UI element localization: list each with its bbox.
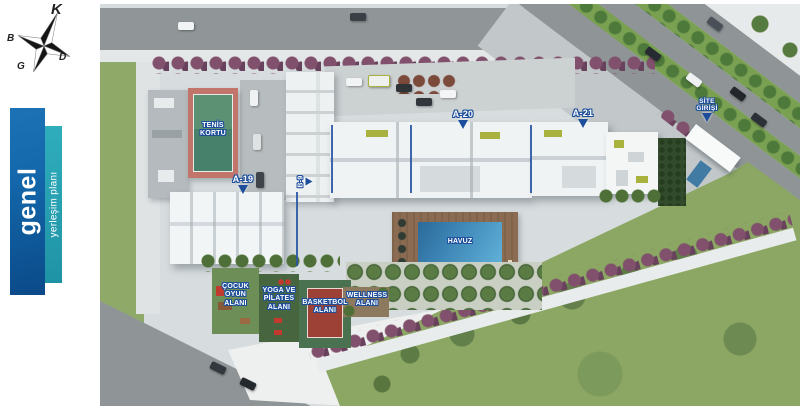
marker-a20-label: A-20 <box>453 109 474 119</box>
compass-star-icon <box>6 2 90 86</box>
car <box>350 13 366 21</box>
playground-label: ÇOCUK OYUN ALANI <box>212 283 259 308</box>
compass-east-label: D <box>59 52 66 63</box>
trees-east <box>598 188 662 204</box>
tennis-label: TENİS KORTU <box>188 122 238 139</box>
playground-label-line3: ALANI <box>212 300 259 308</box>
map-pin-icon <box>702 113 712 122</box>
parcel-line <box>331 125 333 193</box>
wellness-label-line2: ALANI <box>344 300 390 308</box>
compass-south-label: G <box>17 61 25 72</box>
tennis-label-line2: KORTU <box>188 130 238 138</box>
marker-a21-label: A-21 <box>573 108 594 118</box>
yoga-label-line3: ALANI <box>258 304 300 312</box>
marker-site-entrance: SİTE GİRİŞİ <box>685 98 729 122</box>
building-a21 <box>532 122 608 196</box>
parcel-line <box>296 192 298 266</box>
car <box>346 78 362 86</box>
marker-b9: B-9 <box>298 168 313 196</box>
truck <box>368 75 390 87</box>
parcel-line <box>530 125 532 193</box>
car <box>178 22 194 30</box>
marker-a19: A-19 <box>223 174 263 194</box>
pool-label: HAVUZ <box>448 238 473 246</box>
car <box>416 98 432 106</box>
car <box>253 134 261 150</box>
map-pin-icon <box>306 178 313 186</box>
compass-west-label: B <box>7 33 14 44</box>
marker-b9-label: B-9 <box>298 175 305 187</box>
marker-a20: A-20 <box>443 109 483 129</box>
yoga-label-line2: PİLATES <box>258 295 300 303</box>
car <box>396 84 412 92</box>
section-subbanner: yerleşim planı <box>45 126 62 283</box>
building-a20 <box>330 122 532 198</box>
car <box>440 90 456 98</box>
building-east <box>606 132 658 194</box>
car <box>250 90 258 106</box>
map-pin-icon <box>458 120 468 129</box>
section-subtitle: yerleşim planı <box>48 172 59 238</box>
green-wall <box>658 138 686 206</box>
map-pin-icon <box>238 185 248 194</box>
swimming-pool: HAVUZ <box>418 222 502 262</box>
playground-label-line2: OYUN <box>212 291 259 299</box>
map-pin-icon <box>578 119 588 128</box>
section-banner: genel <box>10 108 45 295</box>
entrance-label-line1: SİTE <box>699 98 715 105</box>
wellness-label: WELLNESS ALANI <box>344 292 390 309</box>
parcel-line <box>410 125 412 193</box>
entrance-label-line2: GİRİŞİ <box>696 105 717 112</box>
compass-rose: K B D G <box>6 2 90 86</box>
section-title: genel <box>13 168 42 236</box>
marker-a21: A-21 <box>563 108 603 128</box>
service-building <box>148 90 188 198</box>
yoga-label: YOGA VE PİLATES ALANI <box>258 287 300 312</box>
marker-a19-label: A-19 <box>233 174 254 184</box>
compass-north-label: K <box>51 1 62 18</box>
site-plan-rendering: HAVUZ TENİS KORTU ÇOCUK OYUN ALANI YOGA … <box>100 4 800 406</box>
